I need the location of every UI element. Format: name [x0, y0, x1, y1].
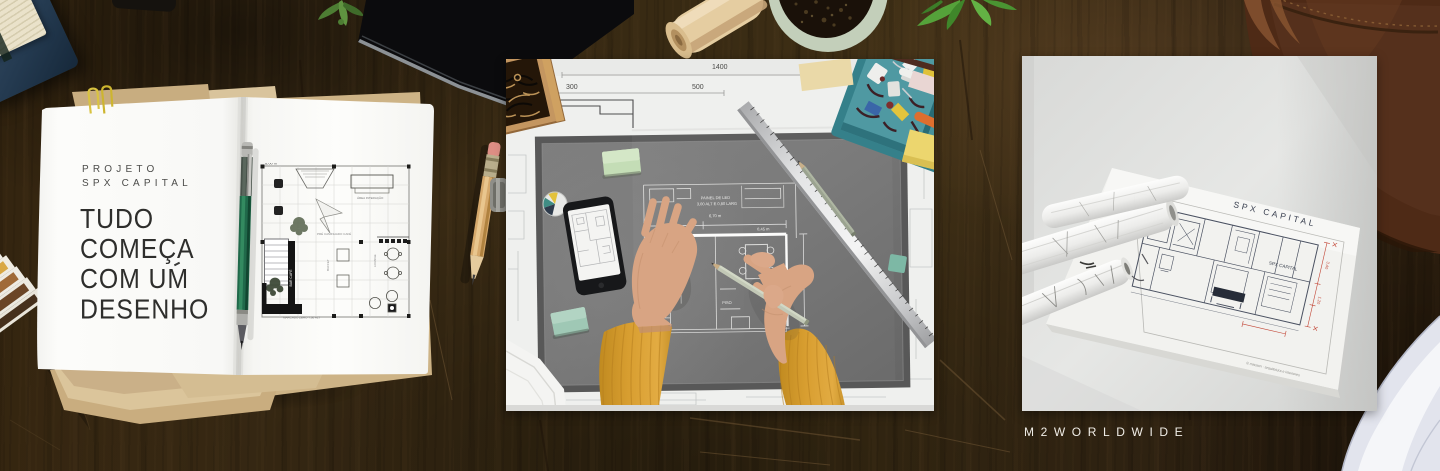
svg-text:PAINEL DE LED: PAINEL DE LED	[701, 195, 731, 200]
svg-text:6,70 m: 6,70 m	[709, 213, 722, 218]
svg-text:LOUNGE: LOUNGE	[373, 254, 377, 267]
svg-text:1400: 1400	[712, 64, 728, 71]
svg-text:300: 300	[566, 84, 578, 91]
svg-text:MARCADO ZERO 7,00 ALT: MARCADO ZERO 7,00 ALT	[283, 316, 320, 320]
svg-text:0,45 m: 0,45 m	[757, 226, 770, 231]
svg-text:PISO: PISO	[722, 300, 732, 305]
svg-text:ÁREA INTERAÇÃO: ÁREA INTERAÇÃO	[357, 195, 384, 200]
svg-text:PRÉ CAMINHADO CAFÉ: PRÉ CAMINHADO CAFÉ	[317, 231, 351, 236]
svg-text:3,00 ALT E 0,80 LARG: 3,00 ALT E 0,80 LARG	[697, 201, 737, 207]
svg-text:8,00 m: 8,00 m	[265, 163, 278, 166]
svg-text:BAR CAFÉ: BAR CAFÉ	[288, 269, 293, 287]
svg-text:BUFFET: BUFFET	[326, 259, 330, 271]
svg-text:500: 500	[692, 84, 704, 91]
